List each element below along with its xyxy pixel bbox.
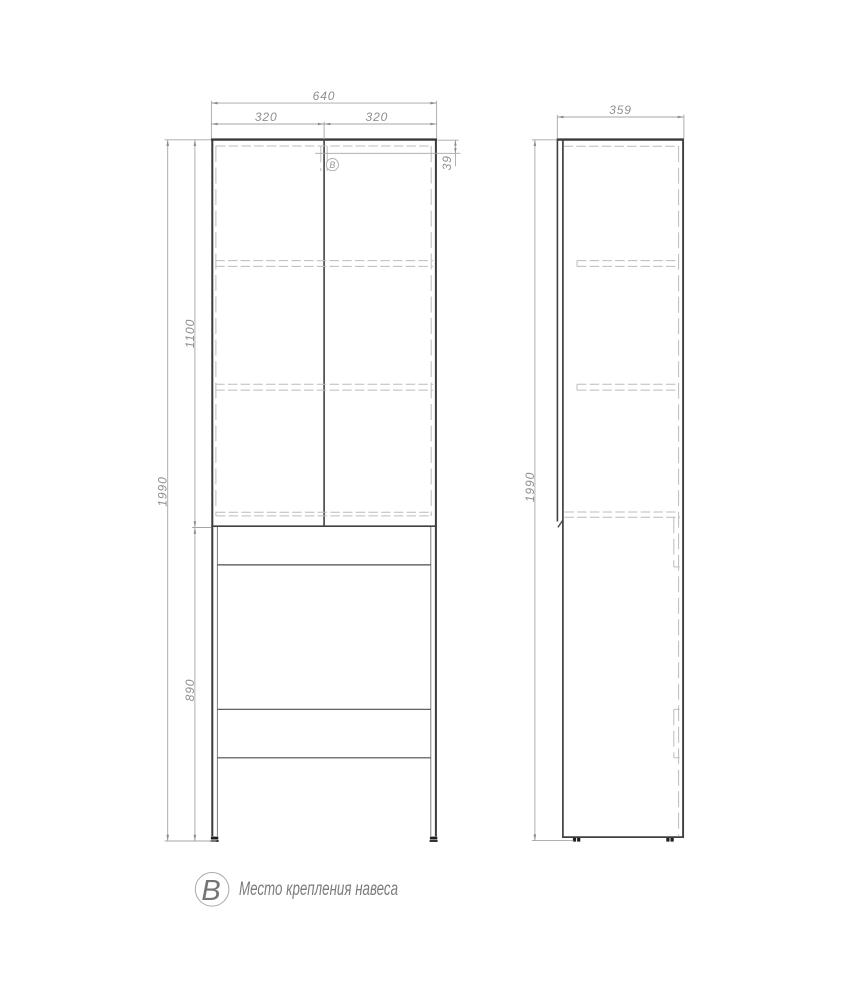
svg-text:1100: 1100 (183, 319, 197, 348)
svg-text:Место крепления навеса: Место крепления навеса (239, 879, 398, 900)
svg-text:890: 890 (183, 679, 197, 702)
svg-text:359: 359 (609, 103, 632, 117)
svg-text:640: 640 (313, 89, 336, 103)
svg-text:39: 39 (440, 155, 454, 170)
svg-text:1990: 1990 (156, 476, 170, 506)
svg-text:320: 320 (255, 110, 278, 124)
svg-text:В: В (201, 875, 220, 907)
svg-text:320: 320 (366, 110, 389, 124)
svg-text:1990: 1990 (523, 472, 537, 502)
svg-text:В: В (329, 160, 335, 170)
